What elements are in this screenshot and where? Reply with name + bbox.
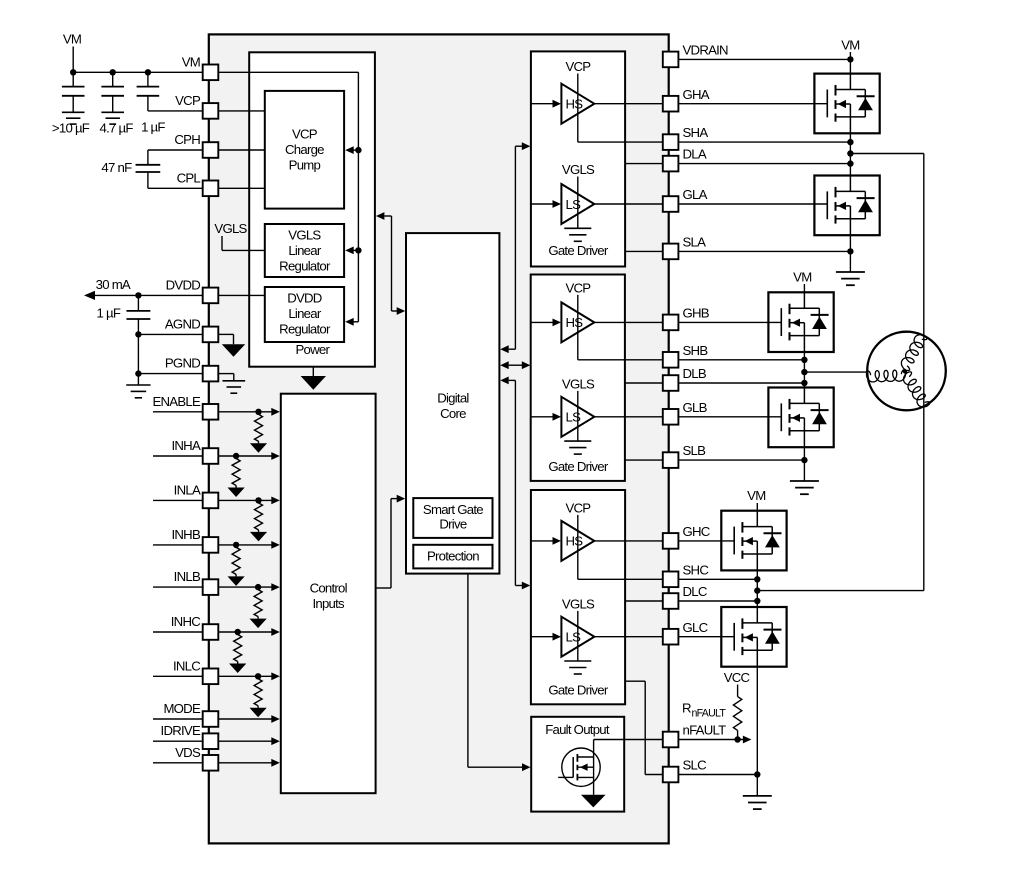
svg-text:VGLS: VGLS [562,596,595,611]
svg-text:INHB: INHB [171,527,200,542]
svg-text:Linear: Linear [288,243,322,258]
svg-text:VCP: VCP [292,126,318,141]
svg-text:Protection: Protection [427,548,479,563]
svg-text:GHA: GHA [683,87,710,102]
svg-text:Drive: Drive [439,517,466,532]
svg-text:GLB: GLB [683,400,708,415]
svg-text:Core: Core [440,406,466,421]
svg-text:nFAULT: nFAULT [692,708,727,720]
svg-text:VCC: VCC [724,670,751,685]
svg-text:Inputs: Inputs [312,596,345,611]
svg-text:DVDD: DVDD [287,290,322,305]
svg-text:Smart Gate: Smart Gate [423,502,483,517]
svg-text:Fault Output: Fault Output [545,722,610,737]
svg-text:1 µF: 1 µF [96,306,120,321]
svg-text:Charge: Charge [285,142,324,157]
svg-text:INLA: INLA [174,482,201,497]
svg-text:GHC: GHC [683,524,711,539]
svg-text:INHC: INHC [171,614,201,629]
svg-text:SLA: SLA [683,235,707,250]
svg-text:VCP: VCP [565,500,591,515]
svg-text:>10 µF: >10 µF [52,121,90,136]
svg-text:HS: HS [566,315,584,330]
svg-text:Control: Control [310,581,348,596]
svg-text:Digital: Digital [437,390,469,405]
svg-text:Linear: Linear [288,306,322,321]
svg-text:HS: HS [566,97,584,112]
svg-text:VGLS: VGLS [214,221,247,236]
svg-text:MODE: MODE [163,701,201,716]
svg-text:PGND: PGND [165,356,200,371]
svg-text:DLB: DLB [683,366,707,381]
svg-text:SHC: SHC [683,562,710,577]
svg-text:VM: VM [747,488,765,503]
svg-text:INHA: INHA [171,438,200,453]
svg-text:SHB: SHB [683,343,709,358]
svg-text:4.7 µF: 4.7 µF [100,121,134,136]
svg-text:VDS: VDS [175,745,201,760]
svg-text:30 mA: 30 mA [96,277,131,292]
svg-text:1 µF: 1 µF [141,120,165,135]
svg-text:GLA: GLA [683,187,708,202]
svg-text:R: R [682,701,691,716]
svg-text:VCP: VCP [565,59,591,74]
svg-text:VCP: VCP [565,280,591,295]
svg-text:AGND: AGND [165,316,200,331]
svg-text:VM: VM [63,31,81,46]
svg-text:DLA: DLA [683,147,707,162]
svg-text:VDRAIN: VDRAIN [683,43,729,58]
svg-text:CPL: CPL [177,170,201,185]
svg-text:Power: Power [295,342,330,357]
svg-text:Pump: Pump [289,158,321,173]
svg-text:Gate Driver: Gate Driver [548,243,609,258]
svg-text:SHA: SHA [683,125,709,140]
svg-text:Gate Driver: Gate Driver [548,459,609,474]
svg-text:HS: HS [566,534,584,549]
svg-text:Regulator: Regulator [279,259,331,274]
svg-text:GLC: GLC [683,620,709,635]
svg-text:INLC: INLC [173,658,201,673]
svg-text:VCP: VCP [175,93,201,108]
svg-text:VM: VM [793,269,811,284]
svg-text:nFAULT: nFAULT [683,723,727,738]
svg-text:Gate Driver: Gate Driver [548,682,609,697]
svg-text:DLC: DLC [683,584,708,599]
svg-text:CPH: CPH [174,132,200,147]
svg-text:VGLS: VGLS [288,227,321,242]
svg-text:VM: VM [182,54,200,69]
svg-text:LS: LS [566,197,582,212]
svg-text:LS: LS [566,630,582,645]
svg-text:DVDD: DVDD [166,277,201,292]
svg-text:VGLS: VGLS [562,162,595,177]
svg-text:ENABLE: ENABLE [152,394,200,409]
svg-text:SLB: SLB [683,443,707,458]
svg-text:Regulator: Regulator [279,322,331,337]
svg-text:47 nF: 47 nF [101,160,132,175]
svg-text:IDRIVE: IDRIVE [161,723,201,738]
svg-text:LS: LS [566,410,582,425]
svg-text:GHB: GHB [683,306,710,321]
svg-text:VGLS: VGLS [562,376,595,391]
svg-text:SLC: SLC [683,758,708,773]
svg-text:INLB: INLB [174,569,201,584]
svg-text:VM: VM [841,38,859,53]
